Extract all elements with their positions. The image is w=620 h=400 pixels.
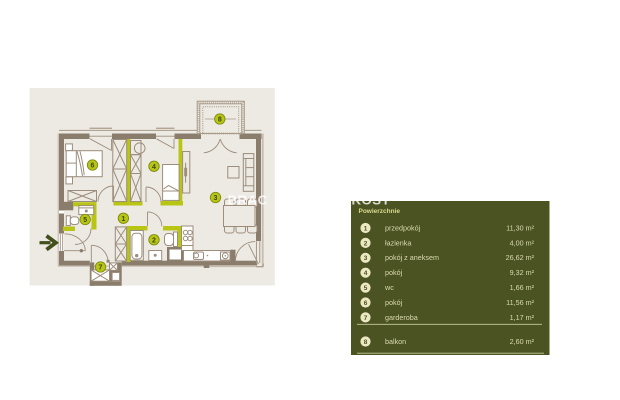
svg-text:8: 8	[218, 117, 222, 124]
svg-text:9,32 m²: 9,32 m²	[510, 268, 535, 277]
svg-text:balkon: balkon	[385, 337, 406, 346]
svg-text:3: 3	[214, 195, 218, 202]
svg-text:4: 4	[152, 164, 156, 171]
svg-text:2,60 m²: 2,60 m²	[510, 337, 535, 346]
svg-text:pokój z aneksem: pokój z aneksem	[385, 253, 439, 262]
svg-text:5: 5	[364, 285, 368, 292]
svg-text:KOST: KOST	[352, 192, 391, 207]
svg-text:6: 6	[364, 300, 368, 307]
svg-text:8: 8	[364, 339, 368, 346]
svg-text:BRAC: BRAC	[228, 192, 268, 207]
svg-text:1: 1	[121, 216, 125, 223]
svg-text:przedpokój: przedpokój	[385, 223, 421, 232]
svg-text:1: 1	[364, 225, 368, 232]
svg-text:7: 7	[99, 265, 103, 272]
svg-text:4: 4	[364, 270, 368, 277]
svg-text:łazienka: łazienka	[385, 238, 411, 247]
svg-text:5: 5	[83, 217, 87, 224]
svg-text:1,17 m²: 1,17 m²	[510, 313, 535, 322]
svg-text:4,00 m²: 4,00 m²	[510, 238, 535, 247]
svg-text:11,30 m²: 11,30 m²	[506, 223, 534, 232]
svg-text:pokój: pokój	[385, 268, 403, 277]
svg-text:garderoba: garderoba	[385, 313, 418, 322]
svg-text:3: 3	[364, 255, 368, 262]
svg-text:6: 6	[91, 163, 95, 170]
svg-text:pokój: pokój	[385, 298, 403, 307]
svg-text:wc: wc	[384, 283, 394, 292]
svg-text:7: 7	[364, 315, 368, 322]
svg-text:2: 2	[152, 237, 156, 244]
svg-text:26,62 m²: 26,62 m²	[506, 253, 535, 262]
svg-text:Powierzchnie: Powierzchnie	[359, 208, 401, 215]
svg-text:1,66 m²: 1,66 m²	[510, 283, 535, 292]
svg-text:11,56 m²: 11,56 m²	[506, 298, 534, 307]
svg-text:2: 2	[364, 240, 368, 247]
